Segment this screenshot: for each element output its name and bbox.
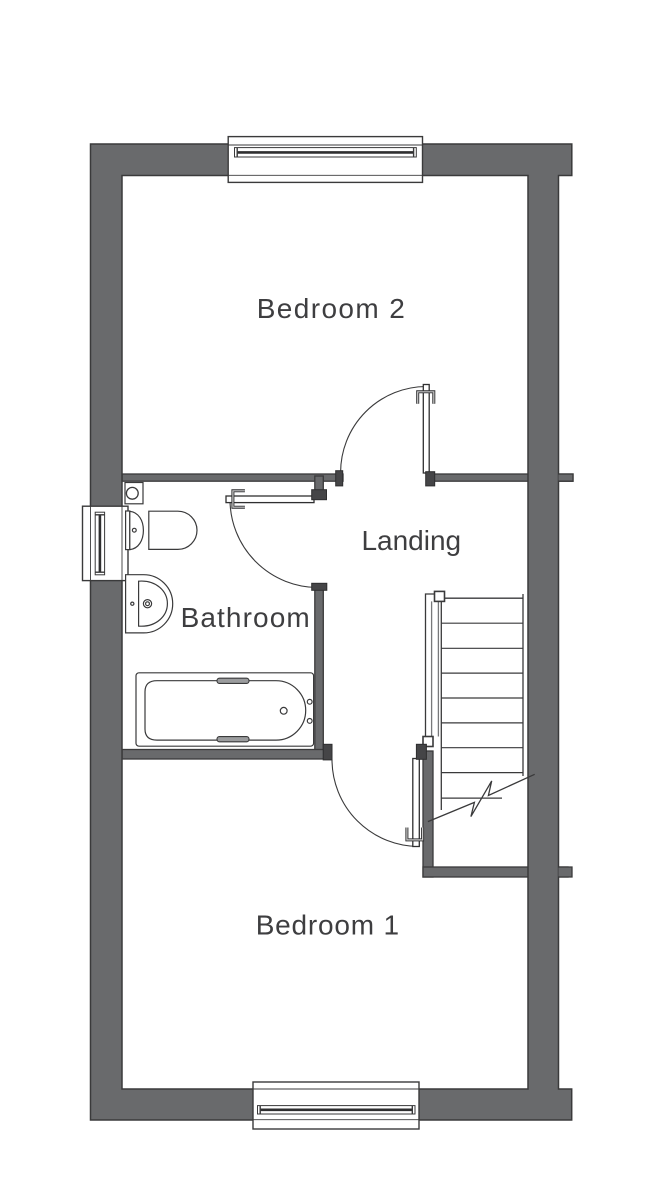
svg-text:Bedroom 2: Bedroom 2 bbox=[257, 293, 407, 324]
svg-text:Bedroom 1: Bedroom 1 bbox=[256, 910, 400, 941]
svg-text:Landing: Landing bbox=[361, 525, 461, 556]
svg-text:Bathroom: Bathroom bbox=[181, 602, 311, 633]
